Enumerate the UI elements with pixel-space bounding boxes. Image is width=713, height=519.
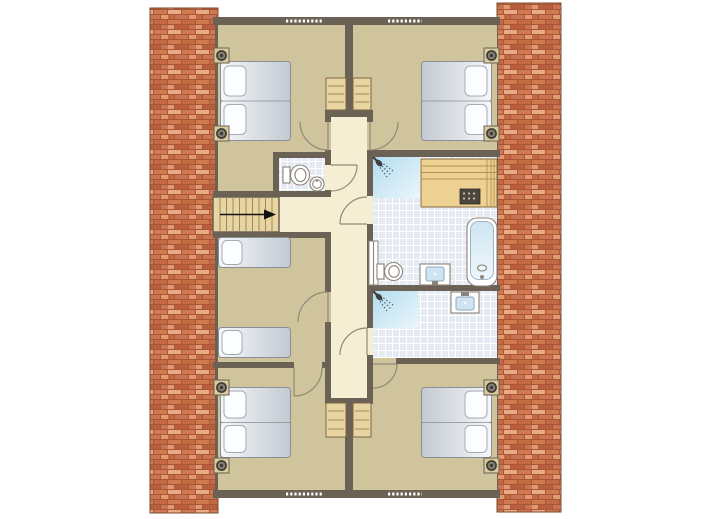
spot-light: [214, 380, 229, 395]
spot-light: [214, 48, 229, 63]
sauna-heater: [460, 189, 480, 204]
brick-wall-left: [150, 8, 218, 513]
threshold: [367, 328, 373, 355]
wall-bathroom-top: [367, 150, 500, 157]
pillow: [224, 426, 246, 453]
stair-landing-floor: [279, 197, 331, 232]
floor-plan-canvas: [0, 0, 713, 519]
pillow: [224, 66, 246, 96]
bathroom-toilet: [377, 263, 403, 281]
wall-shower-room-bottom: [396, 358, 500, 364]
pillow: [465, 426, 487, 453]
threshold: [373, 358, 397, 364]
brick-wall-right: [497, 3, 561, 512]
wall-bottom: [213, 490, 500, 498]
pillow: [222, 241, 242, 265]
floor-plan-drawing: [0, 0, 713, 519]
bed-double-top-right: [422, 62, 492, 141]
spot-light: [214, 126, 229, 141]
bed-double-top-left: [221, 62, 291, 141]
threshold: [294, 362, 322, 368]
wall-wc-left: [273, 152, 279, 197]
bathroom-washbasin: [420, 264, 450, 285]
staircase: [213, 197, 279, 232]
hallway-floor: [331, 117, 367, 398]
wall-hallway-top: [325, 110, 373, 117]
spot-light: [484, 126, 499, 141]
wall-stairs-top: [213, 191, 331, 197]
wall-wc-top: [273, 152, 331, 158]
threshold: [325, 165, 331, 191]
spot-light: [484, 380, 499, 395]
spot-light: [214, 458, 229, 473]
bed-double-bottom-left: [221, 388, 291, 458]
wc-toilet: [283, 165, 310, 185]
spot-light: [484, 48, 499, 63]
threshold: [367, 196, 373, 224]
bed-double-bottom-right: [422, 388, 492, 458]
bed-single-upper: [219, 238, 291, 268]
wall-middle-left-bottom: [213, 362, 294, 368]
bed-single-lower: [219, 328, 291, 358]
wc-washbasin: [310, 177, 324, 191]
wall-top: [213, 17, 500, 25]
pillow: [465, 66, 487, 96]
shower-room-washbasin: [451, 292, 479, 313]
spot-light: [484, 458, 499, 473]
sauna-bench: [421, 159, 497, 207]
bathtub: [467, 218, 497, 286]
threshold: [325, 197, 331, 232]
pillow: [222, 331, 242, 355]
